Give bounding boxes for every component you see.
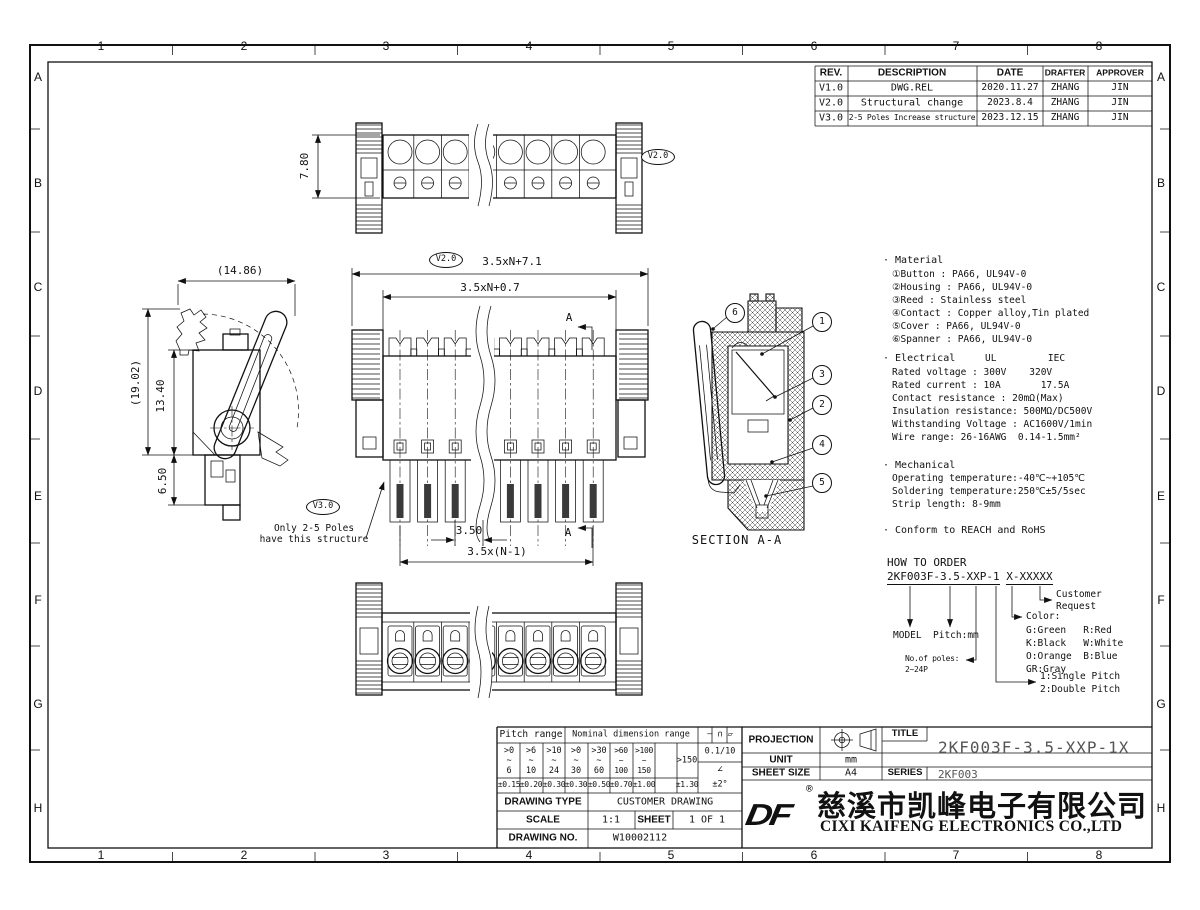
order-poles-label: No.of poles: 2~24P bbox=[905, 653, 959, 675]
projection-symbol bbox=[831, 729, 876, 751]
tol-range: >10 ~ 24 bbox=[546, 746, 561, 776]
zone-label: E bbox=[1157, 489, 1165, 503]
rev-header: REV. bbox=[820, 67, 842, 80]
tol-value: ±0.30 bbox=[565, 780, 588, 790]
zone-label: 1 bbox=[98, 39, 105, 53]
rev-cell: JIN bbox=[1111, 97, 1128, 109]
order-title: HOW TO ORDER bbox=[887, 556, 966, 570]
zone-label: D bbox=[1157, 384, 1166, 398]
unit-value: mm bbox=[845, 754, 857, 767]
tol-range: >100 ~ 150 bbox=[635, 746, 653, 776]
tol-range: >6 ~ 10 bbox=[526, 746, 536, 776]
rev-header: DATE bbox=[997, 67, 1023, 80]
version-balloon-v20-dim: V2.0 bbox=[429, 252, 463, 268]
rev-cell: 2023.8.4 bbox=[987, 97, 1033, 109]
rev-cell: JIN bbox=[1111, 82, 1128, 94]
version-balloon-v20-top: V2.0 bbox=[641, 149, 675, 165]
order-customer-label: Customer Request bbox=[1056, 589, 1102, 613]
bottom-view bbox=[356, 583, 642, 698]
drawing-no-value: W10002112 bbox=[613, 832, 667, 845]
drawing-no-label: DRAWING NO. bbox=[509, 832, 578, 845]
zone-label: G bbox=[33, 697, 42, 711]
tol-range-150: >150 bbox=[677, 755, 697, 766]
rev-cell: V1.0 bbox=[819, 82, 843, 95]
tol-value: ±1.30 bbox=[676, 780, 699, 790]
scale-value: 1:1 bbox=[602, 814, 620, 827]
zone-label: C bbox=[34, 280, 43, 294]
order-color-options: G:Green R:Red K:Black W:White O:Orange B… bbox=[1026, 624, 1123, 676]
version-balloon-v30: V3.0 bbox=[306, 499, 340, 515]
dim-pitch-span: 3.5x(N-1) bbox=[467, 545, 527, 559]
zone-label: 5 bbox=[668, 848, 675, 862]
balloon-1: 1 bbox=[812, 312, 832, 332]
order-pitch-label: Pitch:mm bbox=[933, 630, 979, 642]
zone-label: H bbox=[34, 801, 43, 815]
tol-value-angle: ±2° bbox=[712, 779, 727, 790]
tol-range: >60 ~ 100 bbox=[614, 746, 628, 776]
rev-header: DESCRIPTION bbox=[878, 67, 946, 80]
zone-label: 8 bbox=[1096, 39, 1103, 53]
rev-cell: ZHANG bbox=[1051, 112, 1080, 124]
balloon-2: 2 bbox=[812, 395, 832, 415]
rev-cell: ZHANG bbox=[1051, 97, 1080, 109]
dim-pitch: 3.50 bbox=[456, 524, 483, 538]
rev-cell: 2023.12.15 bbox=[981, 112, 1038, 124]
zone-label: 4 bbox=[526, 39, 533, 53]
dim-front-inner: 3.5xN+0.7 bbox=[460, 281, 520, 295]
company-logo: DF bbox=[743, 798, 792, 832]
zone-label: 7 bbox=[953, 848, 960, 862]
dim-side-body: 13.40 bbox=[154, 379, 168, 412]
material-title: · Material bbox=[883, 254, 943, 267]
zone-label: 5 bbox=[668, 39, 675, 53]
zone-label: 3 bbox=[383, 848, 390, 862]
rev-header: DRAFTER bbox=[1045, 67, 1086, 78]
order-pitch-options: 1:Single Pitch 2:Double Pitch bbox=[1040, 670, 1120, 696]
title-value: 2KF003F-3.5-XXP-1X bbox=[938, 738, 1129, 759]
sheet-value: 1 OF 1 bbox=[689, 814, 725, 827]
zone-label: 1 bbox=[98, 848, 105, 862]
mechanical-title: · Mechanical bbox=[883, 459, 955, 472]
drawing-sheet: REV. DESCRIPTION DATE DRAFTER APPROVER V… bbox=[0, 0, 1200, 910]
electrical-title: · Electrical bbox=[883, 352, 955, 365]
zone-label: D bbox=[34, 384, 43, 398]
zone-label: H bbox=[1157, 801, 1166, 815]
tol-pitch-header: Pitch range bbox=[500, 729, 563, 741]
zone-label: B bbox=[34, 176, 42, 190]
company-name-en: CIXI KAIFENG ELECTRONICS CO.,LTD bbox=[820, 818, 1122, 836]
tol-value: ±0.30 bbox=[543, 780, 566, 790]
rev-cell: 2-5 Poles Increase structure bbox=[849, 113, 975, 123]
rev-cell: V3.0 bbox=[819, 112, 843, 125]
order-code-suffix: X-XXXXX bbox=[1006, 570, 1052, 585]
rev-cell: Structural change bbox=[861, 97, 963, 110]
sheet-label: SHEET bbox=[637, 814, 670, 827]
rev-header: APPROVER bbox=[1096, 67, 1144, 78]
title-label: TITLE bbox=[892, 728, 918, 740]
tol-symbols: — ∩ ▱ bbox=[707, 729, 733, 740]
zone-label: G bbox=[1156, 697, 1165, 711]
front-view bbox=[352, 268, 648, 566]
tol-range: >0 ~ 30 bbox=[571, 746, 581, 776]
sheet-size-label: SHEET SIZE bbox=[752, 767, 810, 780]
zone-label: A bbox=[1157, 70, 1165, 84]
tol-ratio: 0.1/10 bbox=[705, 746, 736, 757]
zone-label: 2 bbox=[241, 848, 248, 862]
dim-side-width: (14.86) bbox=[217, 264, 263, 278]
rev-cell: 2020.11.27 bbox=[981, 82, 1038, 94]
dim-front-total: 3.5xN+7.1 bbox=[482, 255, 542, 269]
registered-mark: ® bbox=[806, 782, 813, 796]
zone-label: 3 bbox=[383, 39, 390, 53]
drawing-type-value: CUSTOMER DRAWING bbox=[617, 796, 713, 809]
zone-label: F bbox=[1157, 593, 1164, 607]
section-view bbox=[693, 294, 813, 530]
rev-cell: ZHANG bbox=[1051, 82, 1080, 94]
series-value: 2KF003 bbox=[938, 768, 978, 782]
tol-range: >0 ~ 6 bbox=[504, 746, 514, 776]
rev-cell: DWG.REL bbox=[891, 82, 933, 95]
tol-value: ±0.15 bbox=[498, 780, 521, 790]
tol-value: ±0.70 bbox=[610, 780, 633, 790]
unit-label: UNIT bbox=[769, 754, 792, 767]
zone-label: C bbox=[1157, 280, 1166, 294]
order-model-label: MODEL bbox=[893, 630, 922, 642]
dim-side-foot: 6.50 bbox=[156, 468, 170, 495]
rev-cell: V2.0 bbox=[819, 97, 843, 110]
top-view bbox=[312, 123, 642, 233]
zone-label: 4 bbox=[526, 848, 533, 862]
balloon-3: 3 bbox=[812, 365, 832, 385]
tol-range: >30 ~ 60 bbox=[591, 746, 606, 776]
drawing-type-label: DRAWING TYPE bbox=[504, 796, 581, 809]
balloon-4: 4 bbox=[812, 435, 832, 455]
zone-label: A bbox=[34, 70, 42, 84]
balloon-5: 5 bbox=[812, 473, 832, 493]
zone-label: B bbox=[1157, 176, 1165, 190]
order-code: 2KF003F-3.5-XXP-1 X-XXXXX bbox=[887, 570, 1053, 584]
mechanical-lines: Operating temperature:-40℃~+105℃ Solderi… bbox=[892, 472, 1086, 511]
electrical-cols: UL IEC bbox=[985, 353, 1065, 365]
dim-top-height: 7.80 bbox=[298, 153, 312, 180]
zone-label: 7 bbox=[953, 39, 960, 53]
tol-nominal-header: Nominal dimension range bbox=[572, 729, 690, 740]
order-code-main: 2KF003F-3.5-XXP-1 bbox=[887, 570, 1000, 585]
electrical-lines: Rated voltage : 300V 320V Rated current … bbox=[892, 366, 1092, 444]
tol-value: ±1.00 bbox=[633, 780, 656, 790]
tol-value: ±0.50 bbox=[588, 780, 611, 790]
sheet-size-value: A4 bbox=[845, 767, 857, 780]
zone-label: 6 bbox=[811, 39, 818, 53]
conform-note: · Conform to REACH and RoHS bbox=[883, 524, 1046, 537]
dim-side-height: (19.02) bbox=[129, 360, 143, 406]
zone-label: E bbox=[34, 489, 42, 503]
projection-label: PROJECTION bbox=[748, 734, 813, 747]
rev-cell: JIN bbox=[1111, 112, 1128, 124]
balloon-6: 6 bbox=[725, 303, 745, 323]
poles-structure-note: Only 2-5 Poles have this structure bbox=[260, 523, 369, 545]
series-label: SERIES bbox=[888, 767, 923, 779]
section-title: SECTION A-A bbox=[692, 533, 782, 549]
zone-label: 2 bbox=[241, 39, 248, 53]
zone-label: 8 bbox=[1096, 848, 1103, 862]
section-arrow-label-top: A bbox=[566, 311, 573, 325]
section-arrow-label-bottom: A bbox=[565, 526, 572, 540]
tol-angle-symbol: ∠ bbox=[717, 764, 723, 777]
zone-label: 6 bbox=[811, 848, 818, 862]
scale-label: SCALE bbox=[526, 814, 560, 827]
zone-label: F bbox=[34, 593, 41, 607]
tol-value: ±0.20 bbox=[520, 780, 543, 790]
material-lines: ①Button : PA66, UL94V-0 ②Housing : PA66,… bbox=[892, 268, 1089, 346]
